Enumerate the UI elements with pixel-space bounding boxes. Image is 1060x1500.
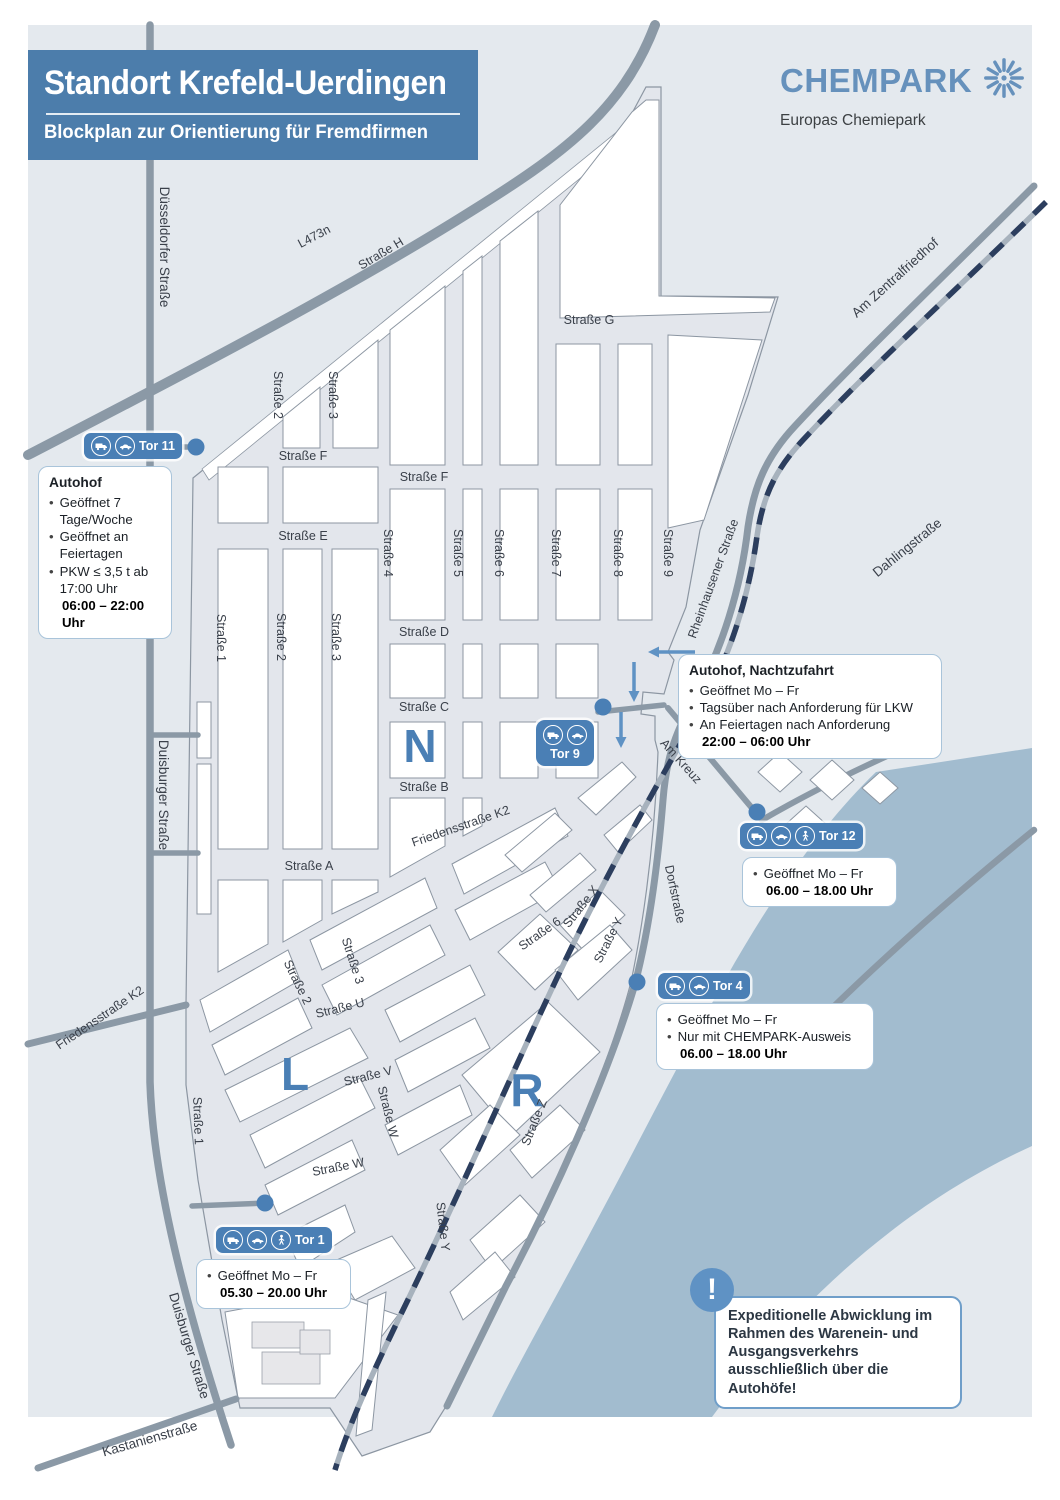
street-label-strasse-e: Straße E bbox=[278, 529, 327, 543]
tor9-dot bbox=[595, 699, 612, 716]
street-label-s3-mid: Straße 3 bbox=[329, 613, 343, 661]
tor12-info-box: •Geöffnet Mo – Fr 06.00 – 18.00 Uhr bbox=[742, 857, 897, 907]
tor4-badge: Tor 4 bbox=[658, 973, 750, 999]
car-icon bbox=[247, 1230, 267, 1250]
info-hours: 06.00 – 18.00 Uhr bbox=[753, 882, 886, 899]
logo-tagline: Europas Chemiepark bbox=[780, 112, 1040, 130]
info-line: •Nur mit CHEMPARK-Ausweis bbox=[667, 1028, 863, 1045]
truck-icon bbox=[665, 976, 685, 996]
truck-icon bbox=[543, 725, 563, 745]
autohof-notice: Expeditionelle Abwicklung im Rahmen des … bbox=[714, 1296, 962, 1409]
street-label-s9: Straße 9 bbox=[661, 529, 675, 577]
info-line: •Geöffnet Mo – Fr bbox=[207, 1267, 340, 1284]
zone-letter-l: L bbox=[281, 1048, 309, 1100]
tor9-info-box: Autohof, Nachtzufahrt •Geöffnet Mo – Fr … bbox=[678, 654, 942, 759]
truck-icon bbox=[747, 826, 767, 846]
tor4-dot bbox=[629, 974, 646, 991]
street-label-s1-mid: Straße 1 bbox=[214, 614, 228, 662]
info-hours: 06:00 – 22:00 Uhr bbox=[49, 597, 161, 631]
title-divider bbox=[46, 113, 460, 115]
tor12-label: Tor 12 bbox=[819, 829, 856, 843]
street-label-duisburger: Duisburger Straße bbox=[156, 740, 171, 850]
street-label-s1-bottom: Straße 1 bbox=[190, 1097, 206, 1145]
tor4-label: Tor 4 bbox=[713, 979, 743, 993]
info-line: •Geöffnet an Feiertagen bbox=[49, 528, 161, 562]
starburst-icon bbox=[978, 52, 1030, 109]
info-line: •Geöffnet Mo – Fr bbox=[753, 865, 886, 882]
logo-wordmark: CHEMPARK bbox=[780, 62, 972, 100]
truck-icon bbox=[223, 1230, 243, 1250]
street-label-s6: Straße 6 bbox=[492, 529, 506, 577]
info-title: Autohof bbox=[49, 474, 161, 492]
tor1-info-box: •Geöffnet Mo – Fr 05.30 – 20.00 Uhr bbox=[196, 1259, 351, 1309]
street-label-strasse-f-left: Straße F bbox=[279, 449, 328, 463]
tor12-dot bbox=[749, 804, 766, 821]
info-line: •An Feiertagen nach Anforderung bbox=[689, 716, 931, 733]
title-block: Standort Krefeld-Uerdingen Blockplan zur… bbox=[28, 50, 478, 160]
info-line: •Tagsüber nach Anforderung für LKW bbox=[689, 699, 931, 716]
tor11-badge: Tor 11 bbox=[84, 433, 182, 459]
street-label-s2-top: Straße 2 bbox=[271, 371, 285, 419]
zone-letter-n: N bbox=[403, 720, 436, 772]
info-line: •Geöffnet Mo – Fr bbox=[667, 1011, 863, 1028]
car-icon bbox=[689, 976, 709, 996]
info-hours: 05.30 – 20.00 Uhr bbox=[207, 1284, 340, 1301]
tor1-dot bbox=[257, 1195, 274, 1212]
street-label-s2-mid: Straße 2 bbox=[274, 613, 288, 661]
info-title: Autohof, Nachtzufahrt bbox=[689, 662, 931, 680]
page-subtitle: Blockplan zur Orientierung für Fremdfirm… bbox=[44, 122, 449, 144]
info-line: •PKW ≤ 3,5 t ab 17:00 Uhr bbox=[49, 563, 161, 597]
street-label-strasse-a: Straße A bbox=[285, 859, 334, 873]
truck-icon bbox=[91, 436, 111, 456]
chempark-logo: CHEMPARK Europas Chemiepark bbox=[780, 52, 1040, 130]
street-label-s7: Straße 7 bbox=[549, 529, 563, 577]
street-label-s3-top: Straße 3 bbox=[326, 371, 340, 419]
street-label-strasse-d: Straße D bbox=[399, 625, 449, 639]
pedestrian-icon bbox=[271, 1230, 291, 1250]
tor9-label: Tor 9 bbox=[550, 747, 580, 761]
tor11-label: Tor 11 bbox=[139, 439, 175, 453]
street-label-strasse-g: Straße G bbox=[564, 313, 615, 327]
tor12-badge: Tor 12 bbox=[740, 823, 863, 849]
street-label-s8: Straße 8 bbox=[611, 529, 625, 577]
car-icon bbox=[115, 436, 135, 456]
page-title: Standort Krefeld-Uerdingen bbox=[44, 64, 433, 103]
tor4-info-box: •Geöffnet Mo – Fr •Nur mit CHEMPARK-Ausw… bbox=[656, 1003, 874, 1070]
car-icon bbox=[771, 826, 791, 846]
street-label-s4: Straße 4 bbox=[381, 529, 395, 577]
info-hours: 06.00 – 18.00 Uhr bbox=[667, 1045, 863, 1062]
street-label-strasse-f-right: Straße F bbox=[400, 470, 449, 484]
street-label-s5: Straße 5 bbox=[451, 529, 465, 577]
tor1-badge: Tor 1 bbox=[216, 1227, 332, 1253]
street-label-strasse-c: Straße C bbox=[399, 700, 449, 714]
info-line: •Geöffnet Mo – Fr bbox=[689, 682, 931, 699]
street-label-duesseldorfer: Düsseldorfer Straße bbox=[157, 187, 172, 308]
tor9-badge: Tor 9 bbox=[536, 720, 594, 766]
road-tor1-stub bbox=[192, 1203, 266, 1206]
blockplan-page: N L R Düsseldorfer Straße L473n Straße H… bbox=[0, 0, 1060, 1500]
tor1-label: Tor 1 bbox=[295, 1233, 325, 1247]
tor11-info-box: Autohof •Geöffnet 7 Tage/Woche •Geöffnet… bbox=[38, 466, 172, 639]
info-line: •Geöffnet 7 Tage/Woche bbox=[49, 494, 161, 528]
info-hours: 22:00 – 06:00 Uhr bbox=[689, 733, 931, 750]
tor11-dot bbox=[188, 439, 205, 456]
exclamation-icon: ! bbox=[690, 1268, 734, 1312]
pedestrian-icon bbox=[795, 826, 815, 846]
street-label-strasse-b: Straße B bbox=[399, 780, 448, 794]
car-icon bbox=[567, 725, 587, 745]
